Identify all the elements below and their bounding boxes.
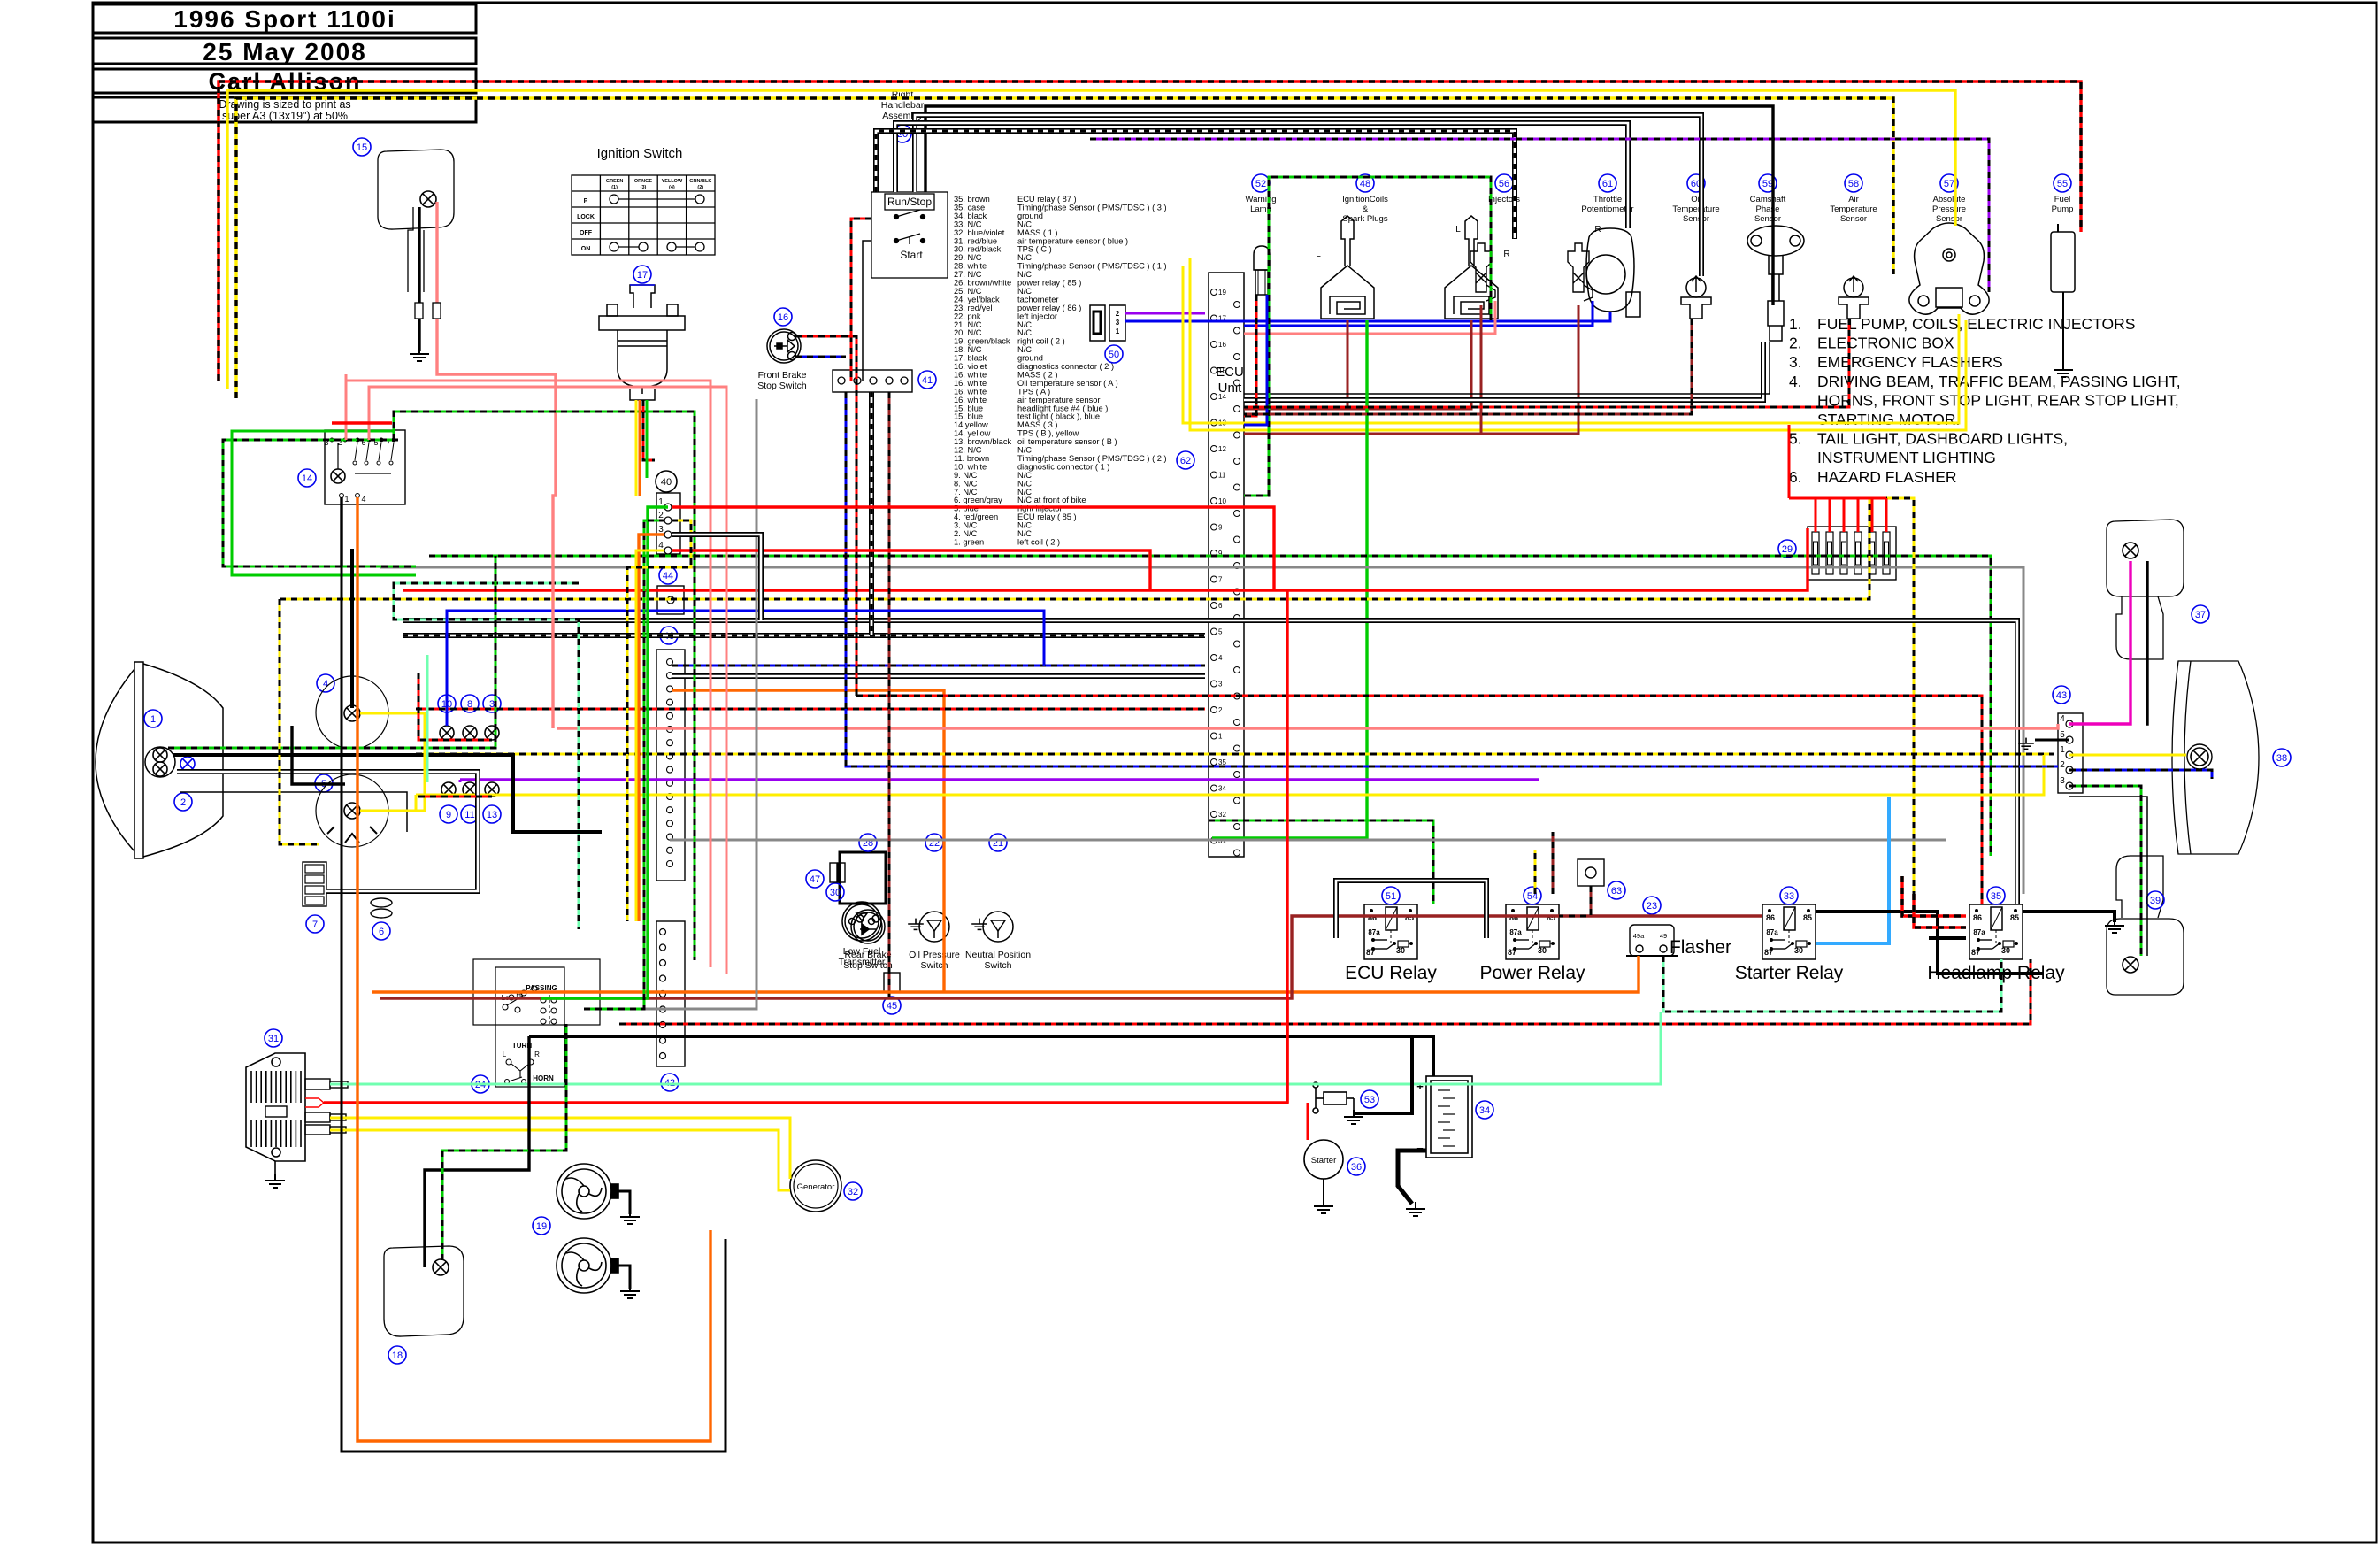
svg-text:Temperature: Temperature [1830, 204, 1877, 214]
svg-text:Neutral Position: Neutral Position [965, 950, 1031, 960]
svg-text:48: 48 [1360, 179, 1370, 189]
svg-text:34: 34 [1218, 785, 1226, 793]
svg-text:39: 39 [2150, 896, 2161, 906]
svg-text:18: 18 [392, 1351, 403, 1361]
svg-text:16: 16 [778, 312, 788, 323]
svg-text:4.: 4. [1789, 373, 1802, 390]
svg-text:4: 4 [1218, 654, 1223, 662]
svg-text:Sensor: Sensor [1683, 214, 1709, 224]
svg-text:Start: Start [900, 249, 923, 261]
svg-text:1: 1 [1218, 733, 1223, 741]
svg-text:Starter Relay: Starter Relay [1735, 963, 1844, 983]
svg-text:DRIVING BEAM, TRAFFIC BEAM, PA: DRIVING BEAM, TRAFFIC BEAM, PASSING LIGH… [1817, 373, 2181, 390]
svg-text:1: 1 [2060, 745, 2065, 755]
svg-text:OFF: OFF [580, 230, 593, 236]
svg-text:2: 2 [658, 511, 664, 520]
svg-text:58: 58 [1848, 179, 1859, 189]
svg-text:37: 37 [2195, 610, 2206, 620]
svg-text:Spark Plugs: Spark Plugs [1342, 214, 1387, 224]
svg-text:Oil Pressure: Oil Pressure [909, 950, 960, 960]
svg-text:17: 17 [637, 270, 648, 281]
svg-text:2: 2 [2060, 760, 2065, 770]
svg-text:+: + [1416, 1080, 1424, 1093]
svg-text:EMERGENCY FLASHERS: EMERGENCY FLASHERS [1817, 353, 2003, 371]
svg-text:41: 41 [922, 375, 933, 386]
svg-text:Camshaft: Camshaft [1750, 195, 1786, 204]
svg-text:Front Brake: Front Brake [758, 370, 807, 381]
svg-text:HAZARD FLASHER: HAZARD FLASHER [1817, 468, 1957, 486]
svg-text:FUEL PUMP, COILS, ELECTRIC INJ: FUEL PUMP, COILS, ELECTRIC INJECTORS [1817, 315, 2135, 333]
svg-text:56: 56 [1499, 179, 1509, 189]
svg-text:Handlebar: Handlebar [881, 100, 925, 111]
svg-text:51: 51 [1386, 891, 1396, 902]
svg-text:85: 85 [2010, 913, 2019, 922]
svg-text:3: 3 [1116, 319, 1120, 327]
svg-text:Rear Brake: Rear Brake [844, 950, 891, 960]
svg-text:super A3 (13x19") at 50%: super A3 (13x19") at 50% [222, 110, 348, 122]
svg-text:&: & [1363, 204, 1369, 214]
svg-text:86: 86 [1973, 913, 1982, 922]
svg-text:3: 3 [1218, 681, 1223, 689]
svg-text:ORNGE: ORNGE [634, 179, 653, 184]
svg-text:32: 32 [1218, 811, 1226, 819]
svg-text:Switch: Switch [985, 960, 1012, 971]
svg-text:4: 4 [658, 541, 664, 550]
svg-text:LOCK: LOCK [577, 214, 595, 220]
svg-text:23: 23 [1647, 901, 1657, 912]
svg-text:49: 49 [1660, 932, 1667, 940]
svg-text:14: 14 [302, 473, 312, 484]
svg-text:HORN: HORN [533, 1074, 554, 1082]
svg-text:9: 9 [1218, 524, 1223, 532]
svg-text:2: 2 [1218, 706, 1223, 714]
svg-text:12: 12 [1218, 445, 1226, 453]
svg-text:11: 11 [1218, 472, 1226, 480]
svg-text:10: 10 [1218, 497, 1226, 505]
svg-text:44: 44 [663, 571, 673, 581]
svg-text:57: 57 [1944, 179, 1954, 189]
svg-text:Starter: Starter [1311, 1156, 1337, 1166]
svg-text:Temperature: Temperature [1672, 204, 1719, 214]
svg-text:1: 1 [1116, 327, 1120, 335]
svg-text:STARTING MOTOR.: STARTING MOTOR. [1817, 411, 1960, 428]
svg-text:left coil ( 2 ): left coil ( 2 ) [1017, 537, 1060, 546]
svg-text:45: 45 [887, 1001, 897, 1012]
svg-text:Absolute: Absolute [1933, 195, 1966, 204]
svg-text:5: 5 [1218, 628, 1223, 636]
svg-text:55: 55 [2057, 179, 2068, 189]
svg-text:6: 6 [379, 927, 384, 937]
svg-text:TAIL LIGHT, DASHBOARD LIGHTS,: TAIL LIGHT, DASHBOARD LIGHTS, [1817, 430, 2068, 448]
svg-text:9: 9 [446, 810, 451, 820]
svg-text:Sensor: Sensor [1840, 214, 1867, 224]
svg-text:47: 47 [810, 874, 820, 885]
svg-text:Power Relay: Power Relay [1479, 963, 1585, 983]
svg-text:36: 36 [1351, 1162, 1362, 1173]
svg-text:L: L [1455, 225, 1461, 235]
svg-text:6.: 6. [1789, 468, 1802, 486]
svg-text:oil temperature sensor ( B ): oil temperature sensor ( B ) [1017, 437, 1117, 446]
svg-text:HORNS, FRONT STOP LIGHT, REAR: HORNS, FRONT STOP LIGHT, REAR STOP LIGHT… [1817, 391, 2179, 409]
svg-text:19: 19 [536, 1221, 547, 1232]
svg-text:35: 35 [1991, 891, 2001, 902]
svg-text:Timing/phase Sensor ( PMS/TDSC: Timing/phase Sensor ( PMS/TDSC ) ( 1 ) [1017, 262, 1167, 271]
svg-text:YELLOW: YELLOW [662, 179, 683, 184]
svg-text:Generator: Generator [797, 1182, 835, 1192]
svg-text:7: 7 [312, 920, 318, 930]
svg-text:63: 63 [1611, 886, 1622, 897]
svg-text:49a: 49a [1633, 932, 1645, 940]
svg-text:ELECTRONIC BOX: ELECTRONIC BOX [1817, 335, 1954, 352]
svg-text:INSTRUMENT LIGHTING: INSTRUMENT LIGHTING [1817, 449, 1996, 466]
svg-text:Stop Switch: Stop Switch [843, 960, 893, 971]
svg-text:Pump: Pump [2052, 204, 2074, 214]
svg-text:R: R [1503, 250, 1509, 259]
svg-text:Fuel: Fuel [2054, 195, 2070, 204]
svg-text:87a: 87a [1509, 928, 1522, 936]
svg-text:5.: 5. [1789, 430, 1802, 448]
svg-text:Run/Stop: Run/Stop [887, 196, 932, 208]
svg-text:33: 33 [1784, 891, 1794, 902]
svg-text:ON: ON [581, 246, 591, 252]
svg-text:31: 31 [268, 1034, 279, 1044]
svg-text:86: 86 [1766, 913, 1775, 922]
svg-text:ECU Relay: ECU Relay [1345, 963, 1437, 983]
svg-text:3: 3 [2060, 776, 2065, 786]
svg-text:87a: 87a [1766, 928, 1778, 936]
svg-text:Sensor: Sensor [1754, 214, 1781, 224]
svg-text:50: 50 [1109, 350, 1119, 360]
svg-text:61: 61 [1602, 179, 1613, 189]
svg-text:(2): (2) [697, 185, 703, 190]
svg-text:25 May 2008: 25 May 2008 [203, 38, 366, 65]
svg-text:Warning: Warning [1245, 195, 1276, 204]
svg-text:4: 4 [2060, 714, 2065, 724]
svg-text:(1): (1) [611, 185, 618, 190]
svg-text:15: 15 [1218, 367, 1226, 375]
svg-text:Ignition Switch: Ignition Switch [597, 146, 683, 161]
svg-text:32: 32 [848, 1187, 858, 1197]
svg-text:Air: Air [1848, 195, 1859, 204]
svg-text:2: 2 [180, 797, 186, 808]
svg-text:GREEN: GREEN [606, 179, 624, 184]
svg-text:40: 40 [661, 477, 672, 488]
svg-text:1. green: 1. green [954, 537, 984, 546]
svg-text:15: 15 [357, 142, 367, 153]
svg-text:2: 2 [1116, 310, 1120, 318]
svg-text:4: 4 [361, 495, 365, 504]
svg-text:5: 5 [2060, 730, 2065, 740]
svg-text:Stop Switch: Stop Switch [757, 381, 807, 391]
svg-text:(3): (3) [641, 185, 647, 190]
svg-text:3.: 3. [1789, 353, 1802, 371]
svg-text:34: 34 [1479, 1105, 1490, 1116]
svg-text:2.: 2. [1789, 335, 1802, 352]
svg-text:1: 1 [344, 495, 349, 504]
svg-text:1.: 1. [1789, 315, 1802, 333]
svg-text:Drawing is sized to print as: Drawing is sized to print as [219, 98, 350, 111]
svg-text:16: 16 [1218, 341, 1226, 349]
svg-text:7: 7 [1218, 576, 1223, 584]
svg-text:R: R [534, 1051, 540, 1058]
svg-text:L: L [503, 1051, 507, 1058]
svg-text:59: 59 [1762, 179, 1773, 189]
svg-text:P: P [584, 198, 588, 204]
svg-text:87a: 87a [1973, 928, 1985, 936]
svg-text:52: 52 [1255, 179, 1266, 189]
svg-text:85: 85 [1803, 913, 1812, 922]
svg-text:Throttle: Throttle [1593, 195, 1622, 204]
svg-text:1996 Sport 1100i: 1996 Sport 1100i [173, 5, 395, 33]
svg-text:29: 29 [1782, 544, 1793, 555]
svg-text:11: 11 [464, 810, 474, 820]
svg-text:87a: 87a [1368, 928, 1380, 936]
svg-text:Phase: Phase [1756, 204, 1780, 214]
svg-text:1: 1 [150, 714, 156, 725]
svg-text:14: 14 [1218, 393, 1226, 401]
svg-text:38: 38 [2276, 753, 2287, 764]
svg-text:62: 62 [1180, 456, 1191, 466]
svg-text:L: L [1316, 250, 1321, 259]
svg-text:Flasher: Flasher [1670, 937, 1731, 958]
svg-text:(4): (4) [669, 185, 675, 190]
svg-text:Pressure: Pressure [1932, 204, 1966, 214]
svg-text:30: 30 [830, 888, 841, 898]
svg-text:19: 19 [1218, 289, 1226, 296]
svg-text:13: 13 [487, 810, 497, 820]
svg-text:6: 6 [1218, 602, 1223, 610]
svg-text:IgnitionCoils: IgnitionCoils [1342, 195, 1388, 204]
svg-text:43: 43 [2056, 690, 2067, 701]
svg-text:53: 53 [1364, 1095, 1375, 1105]
svg-text:GRN/BLK: GRN/BLK [689, 179, 711, 184]
